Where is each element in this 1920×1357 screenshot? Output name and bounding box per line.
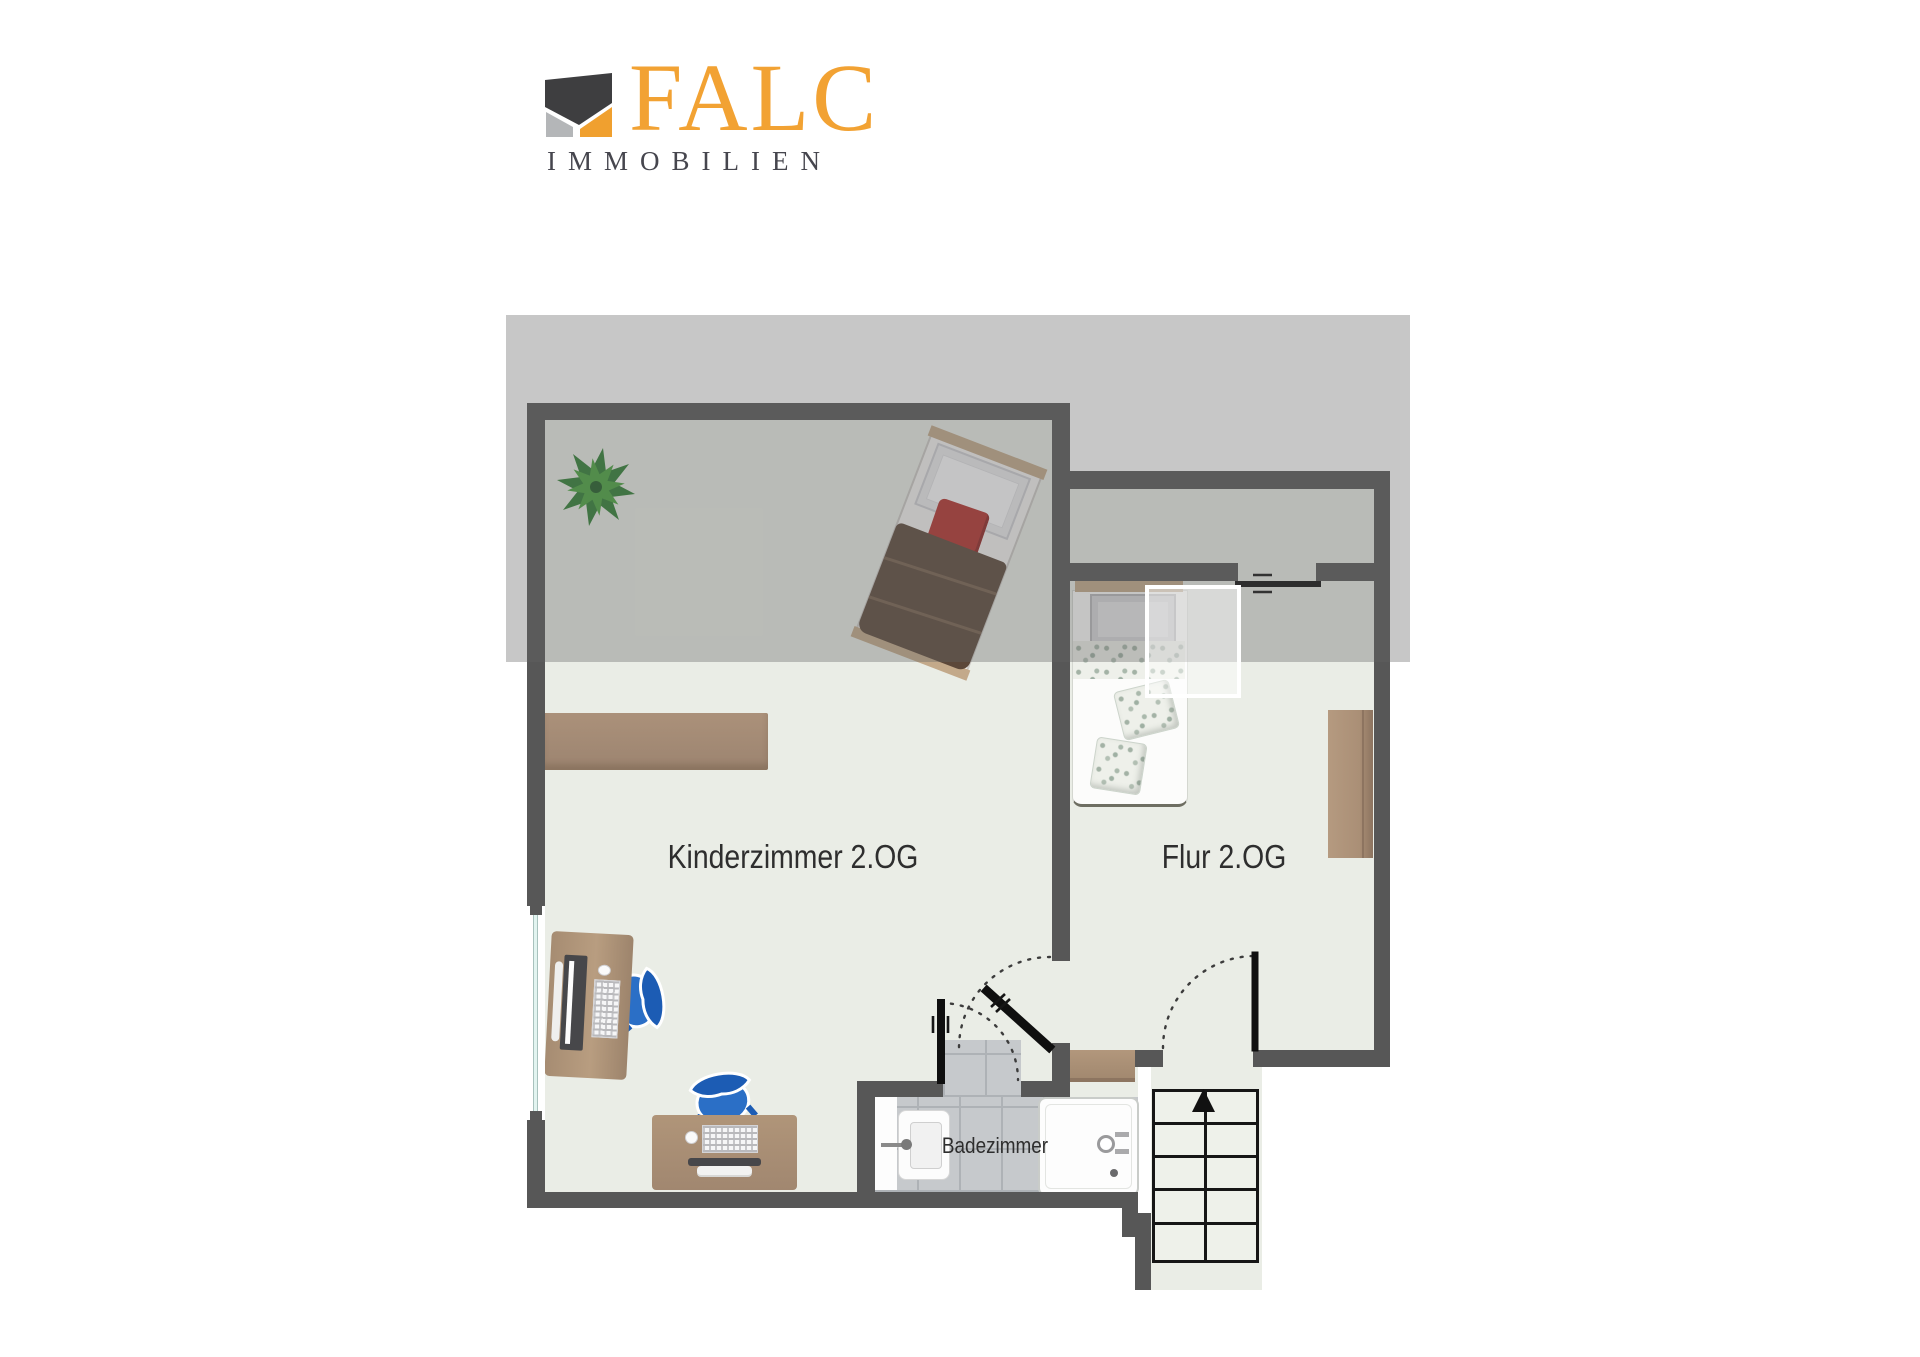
wardrobe-icon [1328, 710, 1373, 858]
wall [527, 1192, 1138, 1208]
sideboard-icon [1068, 1050, 1135, 1082]
room-label-kinderzimmer: Kinderzimmer 2.OG [668, 838, 919, 876]
desk-icon [652, 1115, 797, 1190]
brand-name: FALC [629, 50, 879, 146]
shower-icon [1038, 1097, 1139, 1196]
floorplan-page: FALC IMMOBILIEN [0, 0, 1920, 1357]
wall [857, 1081, 875, 1208]
room-label-flur: Flur 2.OG [1162, 838, 1287, 876]
mouse-icon [685, 1131, 698, 1144]
window-icon [527, 906, 545, 1120]
desk-icon [544, 931, 633, 1080]
wall [1135, 1213, 1151, 1290]
mouse-icon [598, 964, 612, 976]
wall [1253, 1050, 1390, 1067]
keyboard-icon [702, 1125, 758, 1153]
room-label-badezimmer: Badezimmer [942, 1133, 1048, 1159]
gray-overlay-band [506, 315, 1410, 662]
bathroom-door-tiles [943, 1040, 1021, 1097]
monitor-icon [688, 1158, 761, 1166]
wall [1021, 1081, 1070, 1097]
white-highlight-box [1145, 585, 1241, 698]
wall-shelf-icon [543, 713, 768, 770]
floral-cushion [1089, 736, 1148, 795]
keyboard-icon [591, 979, 620, 1038]
falc-logo: FALC IMMOBILIEN [0, 0, 900, 200]
monitor-icon [560, 955, 588, 1051]
monitor-stand [697, 1166, 752, 1175]
wall [1135, 1050, 1163, 1067]
stairs-icon [1152, 1089, 1259, 1263]
brand-subtitle: IMMOBILIEN [547, 146, 832, 177]
